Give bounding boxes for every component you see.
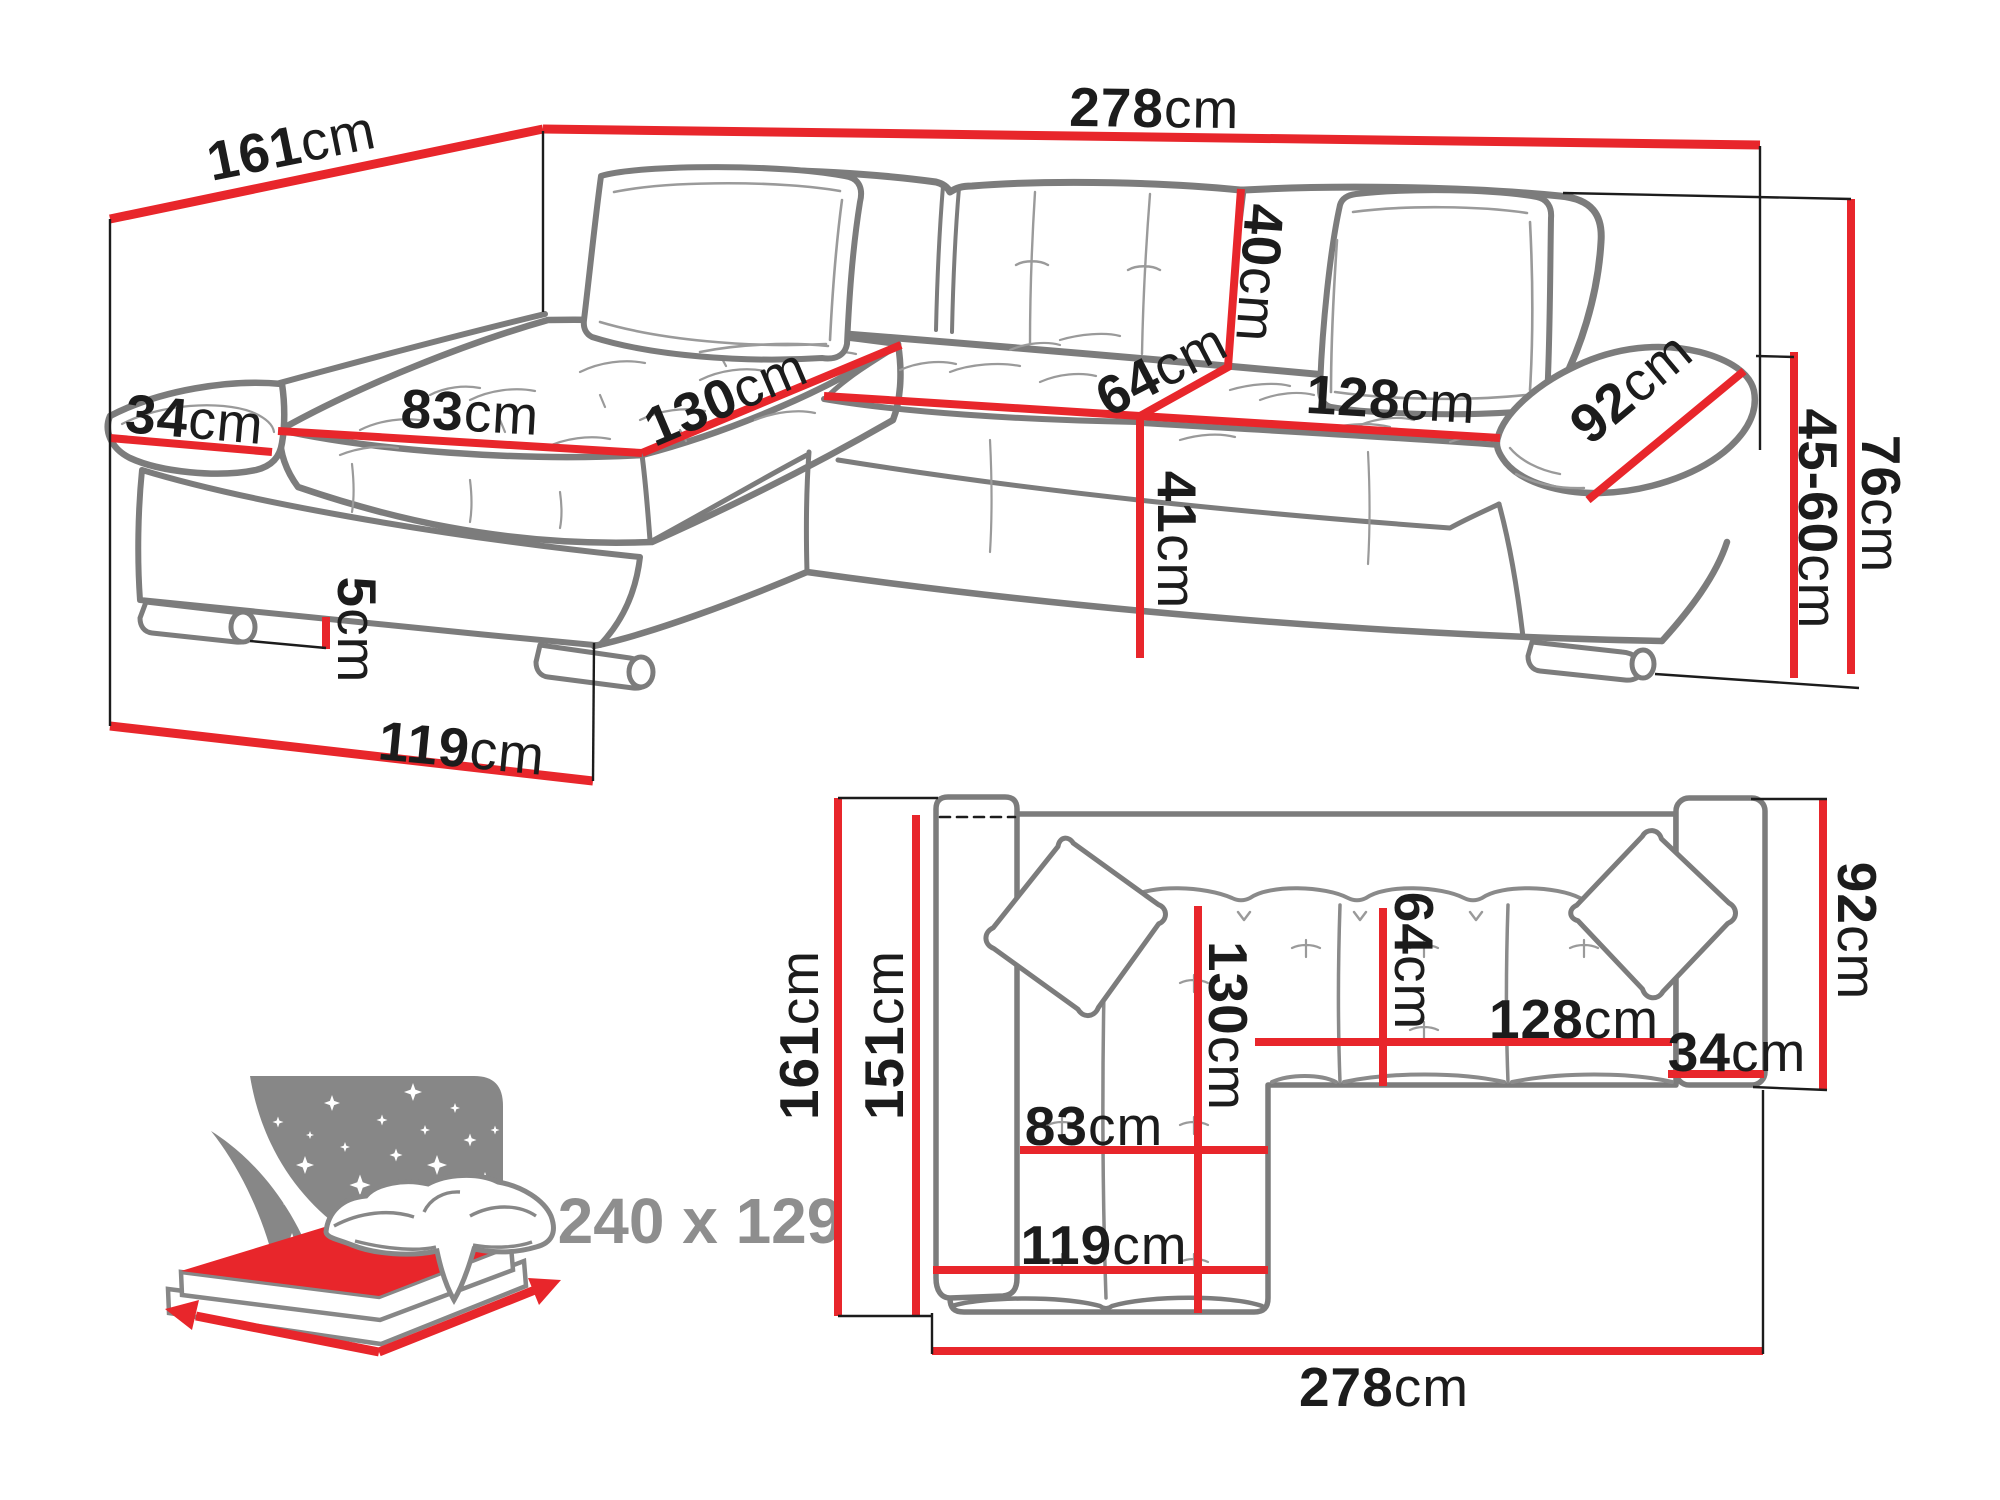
svg-text:151cm: 151cm bbox=[853, 950, 915, 1120]
svg-text:130cm: 130cm bbox=[1197, 941, 1259, 1111]
svg-text:34cm: 34cm bbox=[123, 382, 266, 456]
svg-text:278cm: 278cm bbox=[1069, 76, 1240, 140]
svg-text:83cm: 83cm bbox=[1025, 1095, 1164, 1157]
svg-text:92cm: 92cm bbox=[1826, 862, 1888, 1001]
svg-text:45-60cm: 45-60cm bbox=[1787, 409, 1849, 630]
svg-text:41cm: 41cm bbox=[1146, 471, 1208, 610]
svg-text:128cm: 128cm bbox=[1304, 363, 1478, 435]
svg-text:64cm: 64cm bbox=[1383, 892, 1445, 1031]
svg-text:128cm: 128cm bbox=[1489, 988, 1659, 1050]
svg-text:161cm: 161cm bbox=[768, 950, 830, 1120]
svg-text:34cm: 34cm bbox=[1668, 1021, 1807, 1083]
svg-text:119cm: 119cm bbox=[1020, 1214, 1187, 1276]
svg-text:278cm: 278cm bbox=[1299, 1356, 1469, 1418]
svg-text:5cm: 5cm bbox=[326, 577, 388, 684]
svg-text:40cm: 40cm bbox=[1224, 202, 1296, 345]
svg-text:76cm: 76cm bbox=[1850, 435, 1912, 574]
svg-text:83cm: 83cm bbox=[399, 377, 541, 447]
svg-text:240 x 129: 240 x 129 bbox=[558, 1185, 843, 1257]
